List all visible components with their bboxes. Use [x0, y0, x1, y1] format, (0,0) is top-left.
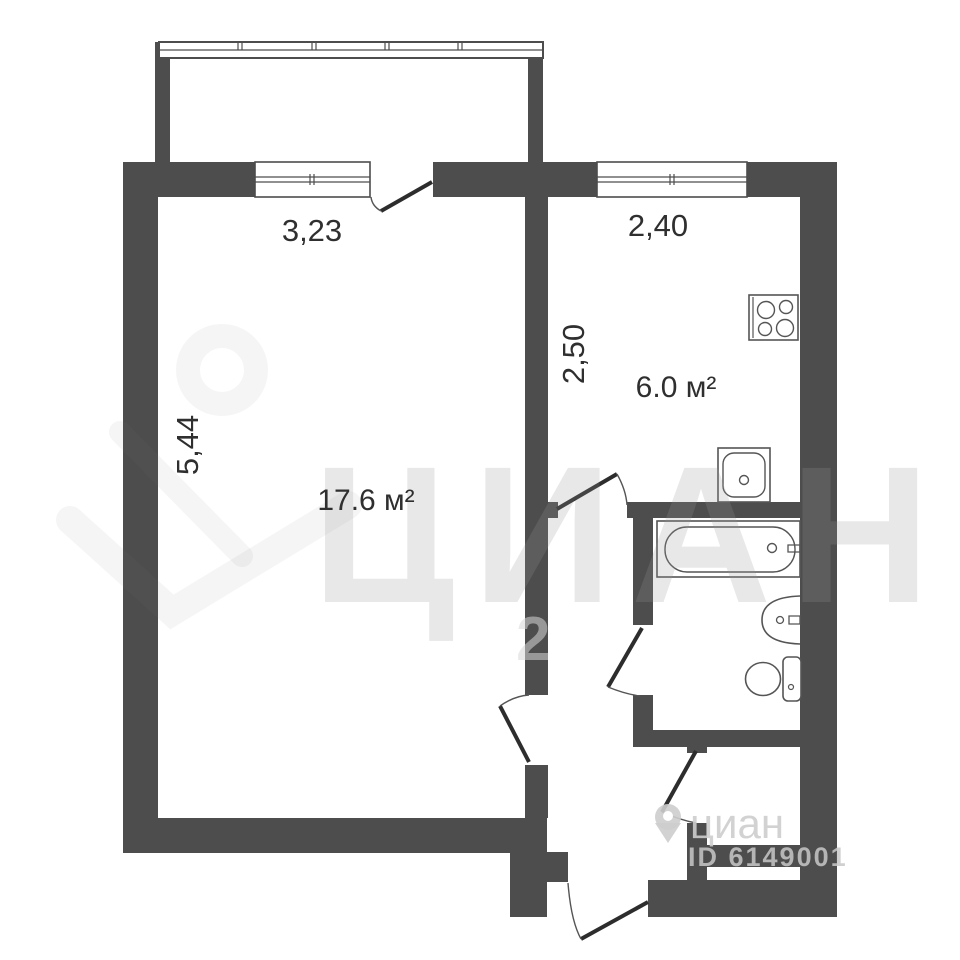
balcony-door — [371, 182, 432, 211]
stove-icon — [749, 295, 798, 340]
bath-left-wall-lower — [633, 695, 653, 730]
floor-plan: ЦИАН 2 циан ID 6149001 3,23 2,40 5,44 2,… — [0, 0, 960, 960]
bottom-wall-entry — [648, 880, 837, 917]
kitchen-area-label: 6.0 м² — [596, 370, 756, 406]
listing-id-watermark: ID 6149001 — [688, 842, 848, 872]
bath-bottom-wall — [633, 730, 800, 747]
entrance-door — [568, 883, 648, 939]
top-wall-middle — [433, 162, 597, 197]
kitchen-height-dimension: 2,50 — [556, 294, 592, 414]
kitchen-width-dimension: 2,40 — [598, 208, 718, 244]
kitchen-window — [597, 162, 747, 197]
entry-left-block — [510, 852, 547, 917]
living-room-width-dimension: 3,23 — [252, 213, 372, 249]
living-room-window — [255, 162, 370, 197]
cian-brand-watermark-large: ЦИАН — [312, 426, 948, 644]
balcony-wall-right — [528, 42, 543, 162]
floor-plan-drawing: ЦИАН 2 циан ID 6149001 — [0, 0, 960, 960]
living-room-height-dimension: 5,44 — [170, 385, 206, 505]
left-outer-wall — [123, 162, 158, 853]
cian-brand-watermark-small: циан — [690, 800, 784, 847]
balcony-wall-left — [155, 42, 170, 162]
living-room-area-label: 17.6 м² — [286, 483, 446, 519]
living-room-door — [500, 695, 529, 762]
living-right-wall-lower — [525, 765, 548, 818]
bottom-wall-living — [123, 818, 547, 853]
cian-pin-watermark-large — [70, 336, 348, 612]
balcony-glazing — [159, 42, 543, 58]
toilet-icon — [746, 657, 802, 701]
cian-pin-watermark-small — [655, 804, 681, 843]
entry-step-block — [547, 852, 568, 882]
watermark-stray-digit: 2 — [516, 605, 550, 674]
